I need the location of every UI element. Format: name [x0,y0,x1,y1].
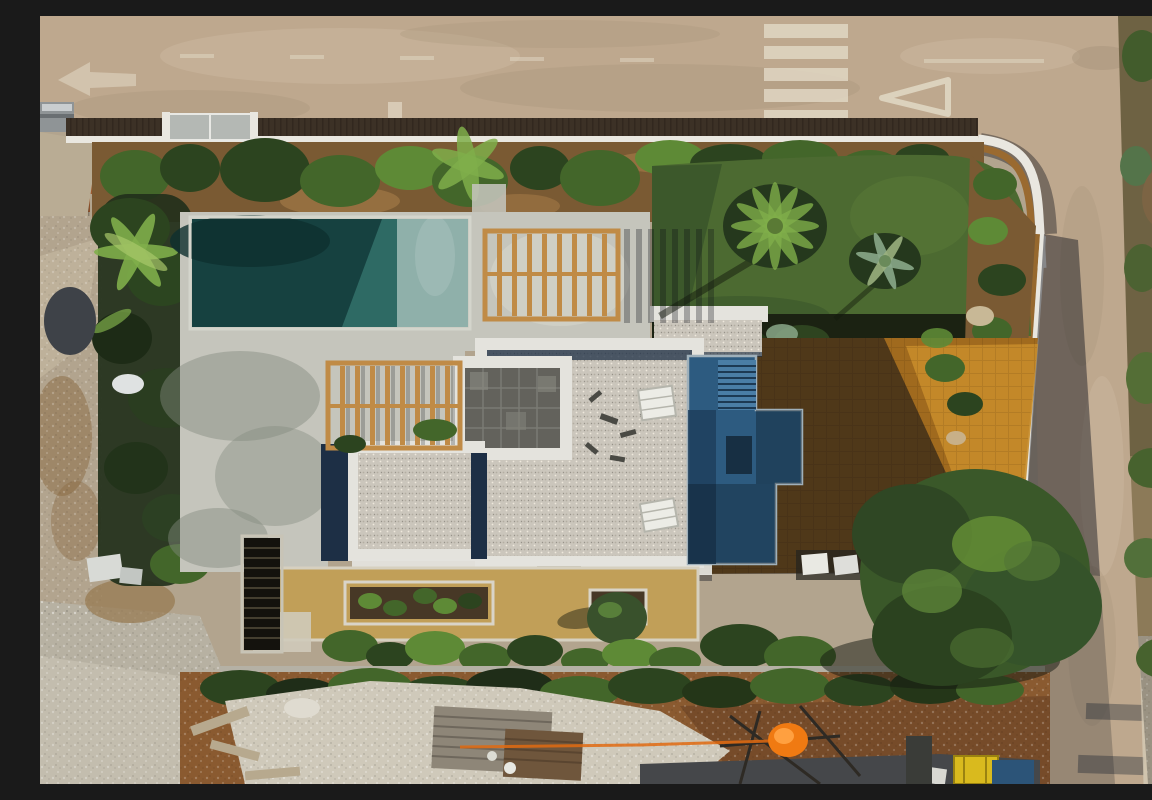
navy-wall-1 [471,453,487,559]
skylight-2 [640,498,678,531]
ac-units [796,550,868,580]
yellow-skip [954,756,998,784]
terrace-stairs [718,360,756,410]
aerial-photo [40,16,1152,784]
navy-wall-2 [321,444,348,561]
patio-plant [413,419,457,441]
planter-bed-1 [345,582,493,624]
blue-tarp [992,760,1034,784]
terrace-doorway [726,436,752,474]
slate-roof [465,368,560,448]
exterior-stairwell [242,536,282,652]
boulder [44,287,96,355]
entrance-gate [162,112,258,142]
dark-board [906,736,932,784]
road-white-mark [388,102,402,118]
olive-tree [587,592,647,644]
white-equipment [112,374,144,394]
swimming-pool [170,215,470,329]
west-gravel-roof [358,453,473,549]
skylight-1 [638,386,676,420]
